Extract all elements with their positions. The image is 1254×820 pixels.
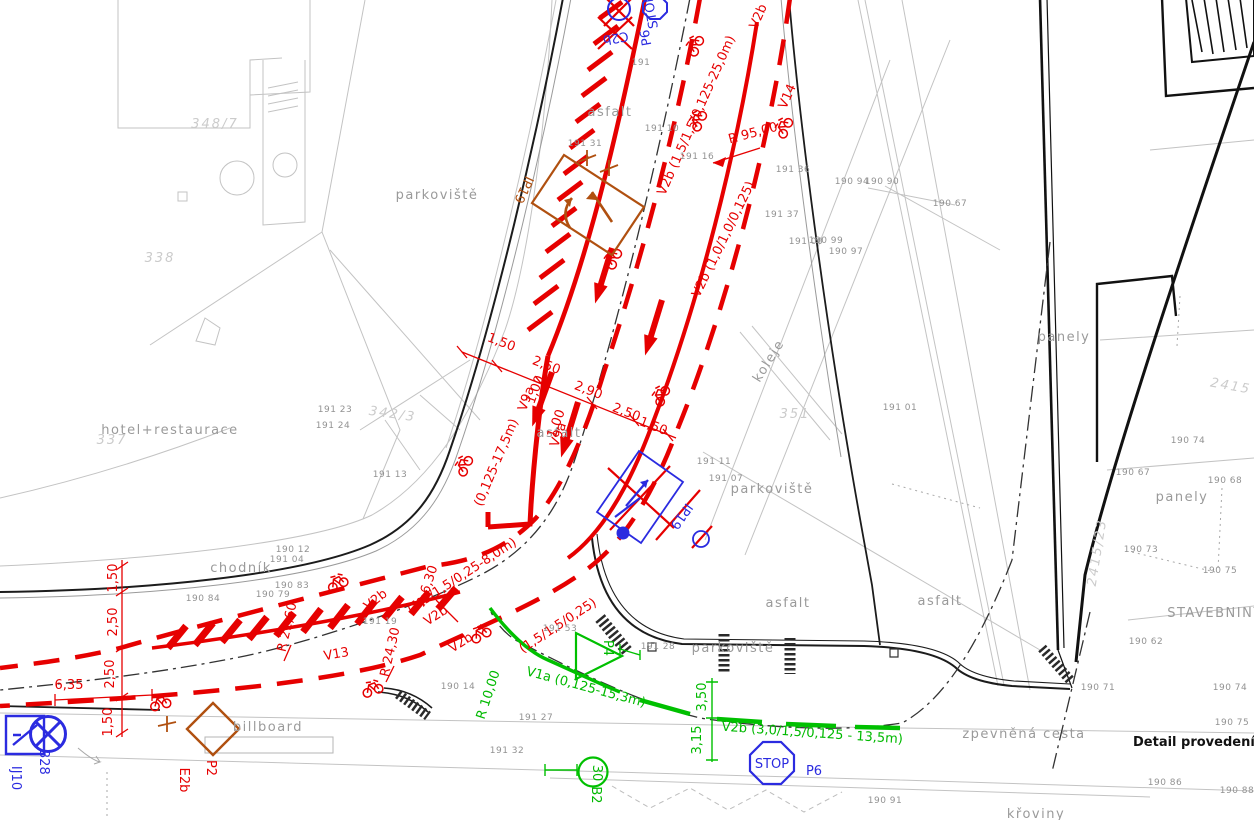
survey-dot <box>617 527 630 540</box>
dim-250-b: 2,50 <box>610 401 642 425</box>
survey-point-number: 190 88 <box>1220 786 1254 796</box>
sign-e2b-label: E2b <box>176 768 191 793</box>
survey-point-number: 190 14 <box>441 682 476 692</box>
survey-point-number: 190 91 <box>868 796 903 806</box>
surface-asfalt-3: asfalt <box>766 596 811 611</box>
survey-point-number: 191 36 <box>776 165 811 175</box>
surface-stavebniny: STAVEBNINY <box>1167 606 1254 621</box>
green-dimension-lines <box>545 644 718 776</box>
survey-point-number: 191 27 <box>519 713 554 723</box>
dim-315: 3,15 <box>690 726 705 755</box>
surface-chodnik: chodník <box>210 561 271 576</box>
dim-r1000: R 10,00 <box>474 669 504 722</box>
dim-635: 6,35 <box>55 678 84 693</box>
surface-asfalt-4: asfalt <box>918 594 963 609</box>
surface-asfalt-1: asfalt <box>588 105 633 120</box>
mark-0125-175: (0,125-17,5m) <box>472 417 522 509</box>
survey-point-number: 191 19 <box>363 617 398 627</box>
surface-kroviny: křoviny <box>1007 807 1065 820</box>
survey-point-number: 191 <box>632 58 651 68</box>
survey-point-number: 191 13 <box>373 470 408 480</box>
east-leg-curb-outer <box>592 538 1070 689</box>
survey-point-number: 191 16 <box>680 152 715 162</box>
survey-point-number: 191 37 <box>765 210 800 220</box>
red-dashed-lane-west <box>0 0 700 668</box>
survey-point-number: 190 99 <box>809 236 844 246</box>
survey-point-number: 190 86 <box>1148 778 1183 788</box>
red-cross-out-marks <box>598 0 712 548</box>
survey-point-number: 190 83 <box>275 581 310 591</box>
mark-v14: V14 <box>776 82 800 111</box>
surface-koleje: koleje <box>750 337 788 385</box>
sign-ip19-label-removed: IP19 <box>667 500 695 532</box>
sign-c2b-label-removed: C2b <box>602 28 630 47</box>
p2-priority-sign <box>187 703 239 755</box>
blue-signs <box>6 0 794 784</box>
survey-point-number: 190 67 <box>933 199 968 209</box>
sign-stop-top-text: STOP <box>641 0 662 30</box>
ip19-lane-sign-new <box>532 155 644 255</box>
surface-parkoviste-3: parkoviště <box>692 641 775 656</box>
sign-ij10-label: IJ10 <box>8 766 23 790</box>
surface-billboard: billboard <box>233 720 303 735</box>
dim-left-150-b: 1,50 <box>101 708 116 737</box>
dim-left-250-a: 2,50 <box>106 608 121 637</box>
detail-note: Detail provedení symbolu <box>1133 735 1254 750</box>
survey-point-number: 190 62 <box>1129 637 1164 647</box>
dim-350: 3,50 <box>695 683 710 712</box>
surface-parkoviste-2: parkoviště <box>731 482 814 497</box>
parcel-2415: 2415 <box>1209 376 1252 398</box>
brown-signs <box>158 150 644 755</box>
sign-stop-text: STOP <box>755 757 789 772</box>
dim-left-150-a: 1,50 <box>106 564 121 593</box>
survey-point-number: 191 53 <box>543 624 578 634</box>
survey-point-number: 190 74 <box>1171 436 1206 446</box>
survey-point-number: 190 75 <box>1203 566 1238 576</box>
survey-point-number: 190 67 <box>1116 468 1151 478</box>
survey-point-number: 191 28 <box>641 642 676 652</box>
surface-zpevnena-cesta: zpevněná cesta <box>962 727 1085 742</box>
parcel-337: 337 <box>97 433 128 448</box>
survey-point-number: 190 90 <box>865 177 900 187</box>
survey-point-number: 190 73 <box>1124 545 1159 555</box>
survey-point-number: 190 84 <box>186 594 221 604</box>
survey-point-number: 191 01 <box>883 403 918 413</box>
mark-v2b-c: V2b <box>446 630 475 656</box>
survey-point-number: 191 23 <box>318 405 353 415</box>
dim-r2430: R 24,30 <box>378 626 404 678</box>
survey-point-number: 191 24 <box>316 421 351 431</box>
mark-v13: V13 <box>323 645 351 664</box>
surface-panely-2: panely <box>1156 490 1209 505</box>
red-hatch-edge <box>548 0 645 356</box>
survey-point-number: 190 71 <box>1081 683 1116 693</box>
survey-point-number: 190 79 <box>256 590 291 600</box>
survey-point-number: 191 31 <box>568 139 603 149</box>
sign-p4-label: P4 <box>600 640 615 656</box>
sign-30-text: 30 <box>589 765 604 782</box>
sign-b28-label: B28 <box>36 749 51 774</box>
mark-v2b-top: V2b <box>747 2 771 31</box>
surface-parkoviste-1: parkoviště <box>396 188 479 203</box>
dim-150-b: 1,50 <box>637 415 669 439</box>
sign-b2-label: B2 <box>588 786 603 803</box>
survey-point-number: 191 11 <box>697 457 732 467</box>
parcel-338: 338 <box>145 251 176 266</box>
sign-p6-top-label: P6 <box>638 28 656 46</box>
sign-p6-label: P6 <box>806 764 822 779</box>
survey-point-number: 191 04 <box>270 555 305 565</box>
mark-v1a: V1a (0,125-15,3m) <box>525 664 648 710</box>
dim-r95: R 95,00 <box>727 120 780 148</box>
sign-ip19-new-label: IP19 <box>510 174 536 206</box>
survey-point-number: 190 68 <box>1208 476 1243 486</box>
survey-point-number: 191 10 <box>645 124 680 134</box>
survey-point-number: 190 97 <box>829 247 864 257</box>
sign-p2-label: P2 <box>203 760 218 776</box>
survey-point-number: 190 12 <box>276 545 311 555</box>
parcel-351: 351 <box>780 407 811 422</box>
parcel-2415-23: 2415/23 <box>1085 518 1110 588</box>
survey-point-number: 190 75 <box>1215 718 1250 728</box>
survey-point-number: 191 32 <box>490 746 525 756</box>
survey-point-number: 191 07 <box>709 474 744 484</box>
dim-left-250-b: 2,50 <box>103 660 118 689</box>
parcel-348-7: 348/7 <box>191 117 238 132</box>
situation-plan-canvas: chodníkparkovištěparkovištěparkovištěasf… <box>0 0 1254 820</box>
plan-drawing: chodníkparkovištěparkovištěparkovištěasf… <box>0 0 1254 820</box>
parcel-342-3: 342/3 <box>368 404 417 425</box>
survey-point-number: 190 74 <box>1213 683 1248 693</box>
surface-panely-1: panely <box>1038 330 1091 345</box>
